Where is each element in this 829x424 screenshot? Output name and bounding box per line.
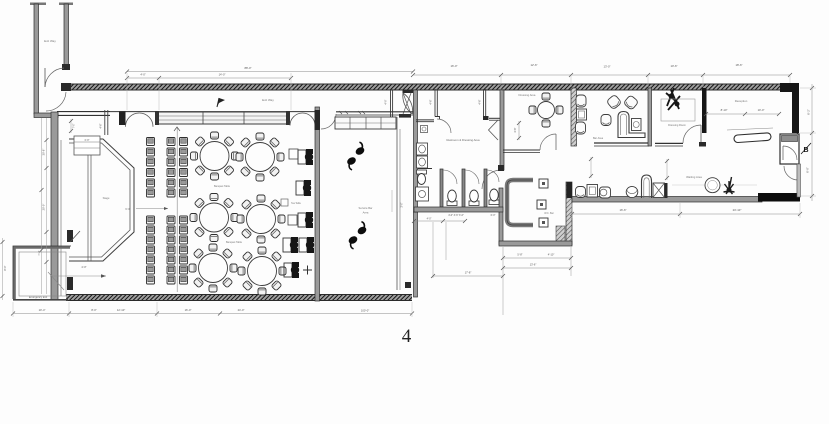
- svg-text:4'-10": 4'-10": [548, 253, 555, 257]
- svg-text:4'-0": 4'-0": [384, 99, 388, 104]
- svg-text:4'-6": 4'-6": [478, 99, 482, 104]
- svg-text:16'-0": 16'-0": [450, 64, 457, 68]
- svg-text:Emergency Exit: Emergency Exit: [29, 295, 47, 299]
- svg-text:6'-0": 6'-0": [806, 167, 810, 172]
- svg-text:Restroom & Dressing Area: Restroom & Dressing Area: [446, 138, 480, 142]
- svg-text:30'-6": 30'-6": [42, 149, 46, 156]
- svg-text:Service Bar: Service Bar: [359, 206, 373, 210]
- svg-text:Exit Way: Exit Way: [44, 39, 56, 43]
- svg-text:4'-0": 4'-0": [140, 73, 145, 77]
- svg-text:13'-0": 13'-0": [603, 65, 610, 69]
- svg-text:12'-6": 12'-6": [530, 63, 537, 67]
- svg-text:6'-0": 6'-0": [125, 207, 130, 211]
- svg-text:W.C. Bar: W.C. Bar: [544, 212, 554, 215]
- svg-text:4'-0": 4'-0": [81, 265, 86, 269]
- svg-text:4'-6": 4'-6": [100, 123, 103, 128]
- svg-text:24'-0": 24'-0": [238, 308, 245, 312]
- svg-text:Dressing Room: Dressing Room: [668, 123, 686, 127]
- svg-text:Tea Table: Tea Table: [291, 203, 302, 205]
- svg-text:Banquet Table: Banquet Table: [226, 241, 243, 244]
- svg-text:7'-2": 7'-2": [37, 250, 41, 255]
- svg-text:Waiting Area: Waiting Area: [686, 175, 702, 179]
- svg-text:16'-0": 16'-0": [185, 308, 192, 312]
- svg-text:7'-0": 7'-0": [73, 123, 76, 128]
- svg-text:4'-6": 4'-6": [513, 127, 517, 132]
- svg-text:20'-10": 20'-10": [733, 208, 742, 212]
- svg-text:88'-0": 88'-0": [244, 66, 251, 70]
- svg-text:5'-8": 5'-8": [517, 253, 522, 257]
- svg-text:4'-0": 4'-0": [427, 218, 432, 221]
- svg-text:20'-0": 20'-0": [42, 204, 46, 211]
- svg-text:12'-10": 12'-10": [117, 308, 125, 312]
- svg-text:3'-0": 3'-0": [401, 202, 404, 207]
- svg-text:4'-6": 4'-6": [429, 99, 433, 104]
- svg-text:14'-0": 14'-0": [219, 73, 226, 77]
- svg-text:Dressing Area: Dressing Area: [519, 93, 536, 97]
- svg-text:Stage: Stage: [103, 196, 110, 200]
- svg-text:16'-6": 16'-6": [619, 208, 626, 212]
- svg-text:Reception: Reception: [735, 99, 748, 103]
- svg-text:10'-6": 10'-6": [670, 64, 677, 68]
- svg-text:8'-0": 8'-0": [3, 265, 7, 270]
- svg-text:Exit Way: Exit Way: [262, 98, 274, 102]
- svg-text:6'-8": 6'-8": [85, 139, 90, 142]
- svg-text:10'-4": 10'-4": [39, 308, 46, 312]
- svg-text:6'-2": 6'-2": [807, 109, 811, 114]
- svg-text:17'-8": 17'-8": [465, 271, 472, 275]
- svg-text:Bar Area: Bar Area: [593, 136, 604, 140]
- svg-text:6'-0": 6'-0": [491, 214, 496, 217]
- svg-text:4'-0" 3'-6" 3'-6": 4'-0" 3'-6" 3'-6": [448, 214, 464, 217]
- svg-text:Banquet Table: Banquet Table: [214, 185, 231, 188]
- svg-text:8'-0": 8'-0": [91, 308, 96, 312]
- svg-text:4: 4: [402, 326, 412, 347]
- svg-text:8'-10": 8'-10": [721, 108, 728, 112]
- svg-text:10'-0": 10'-0": [758, 108, 765, 112]
- svg-text:18'-6": 18'-6": [735, 63, 742, 67]
- svg-text:Area: Area: [363, 211, 369, 215]
- svg-text:13'-6": 13'-6": [530, 263, 537, 267]
- svg-text:100'-0": 100'-0": [361, 309, 369, 313]
